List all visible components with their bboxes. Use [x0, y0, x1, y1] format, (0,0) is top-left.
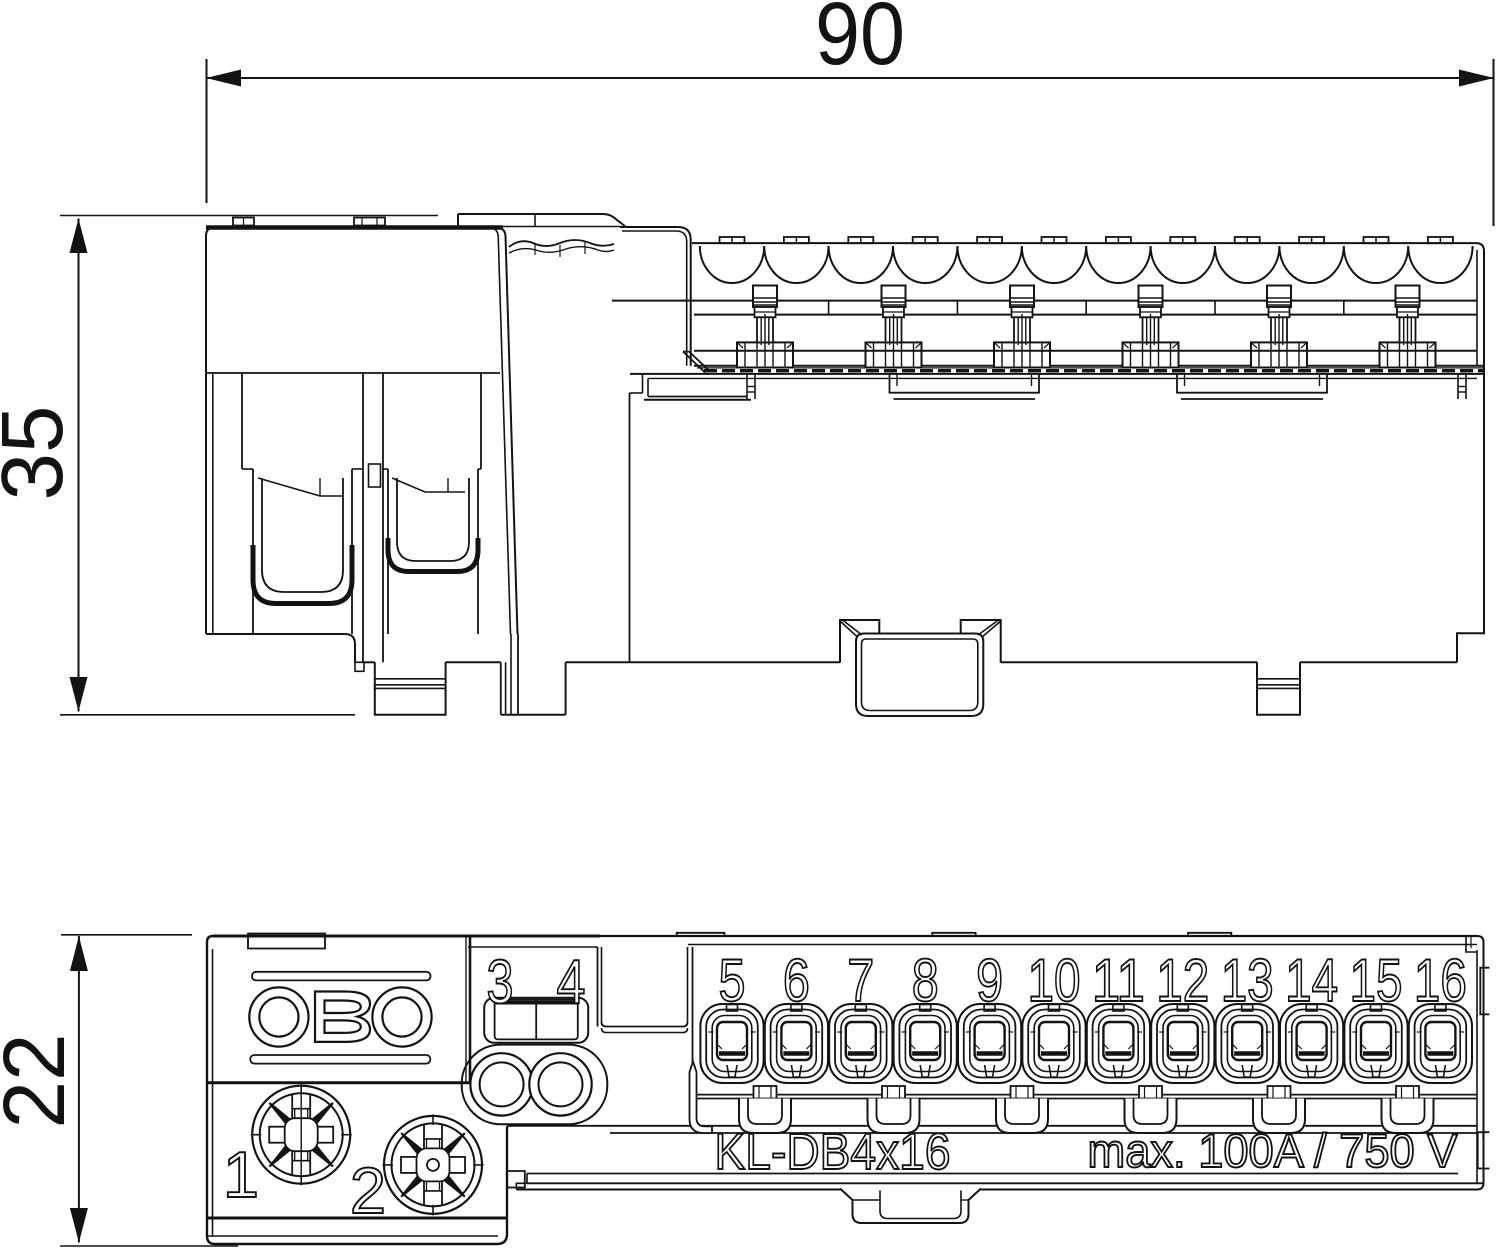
svg-text:15: 15 [1350, 947, 1403, 1014]
svg-text:KL-DB4x16: KL-DB4x16 [715, 1123, 951, 1180]
svg-text:4: 4 [557, 948, 586, 1017]
svg-text:2: 2 [350, 1154, 386, 1227]
svg-text:9: 9 [976, 947, 1003, 1014]
svg-text:1: 1 [223, 1138, 259, 1211]
svg-text:90: 90 [815, 0, 905, 83]
svg-text:10: 10 [1028, 947, 1081, 1014]
svg-text:16: 16 [1414, 947, 1467, 1014]
svg-text:7: 7 [847, 947, 874, 1014]
svg-text:14: 14 [1285, 947, 1338, 1014]
svg-text:35: 35 [0, 406, 81, 501]
svg-text:3: 3 [487, 948, 514, 1017]
svg-text:12: 12 [1156, 947, 1209, 1014]
svg-text:22: 22 [0, 1034, 83, 1129]
svg-text:11: 11 [1092, 947, 1145, 1014]
svg-text:8: 8 [912, 947, 939, 1014]
svg-text:13: 13 [1221, 947, 1274, 1014]
svg-text:6: 6 [783, 947, 810, 1014]
svg-text:5: 5 [719, 947, 746, 1014]
svg-text:max. 100A / 750 V: max. 100A / 750 V [1088, 1124, 1459, 1177]
